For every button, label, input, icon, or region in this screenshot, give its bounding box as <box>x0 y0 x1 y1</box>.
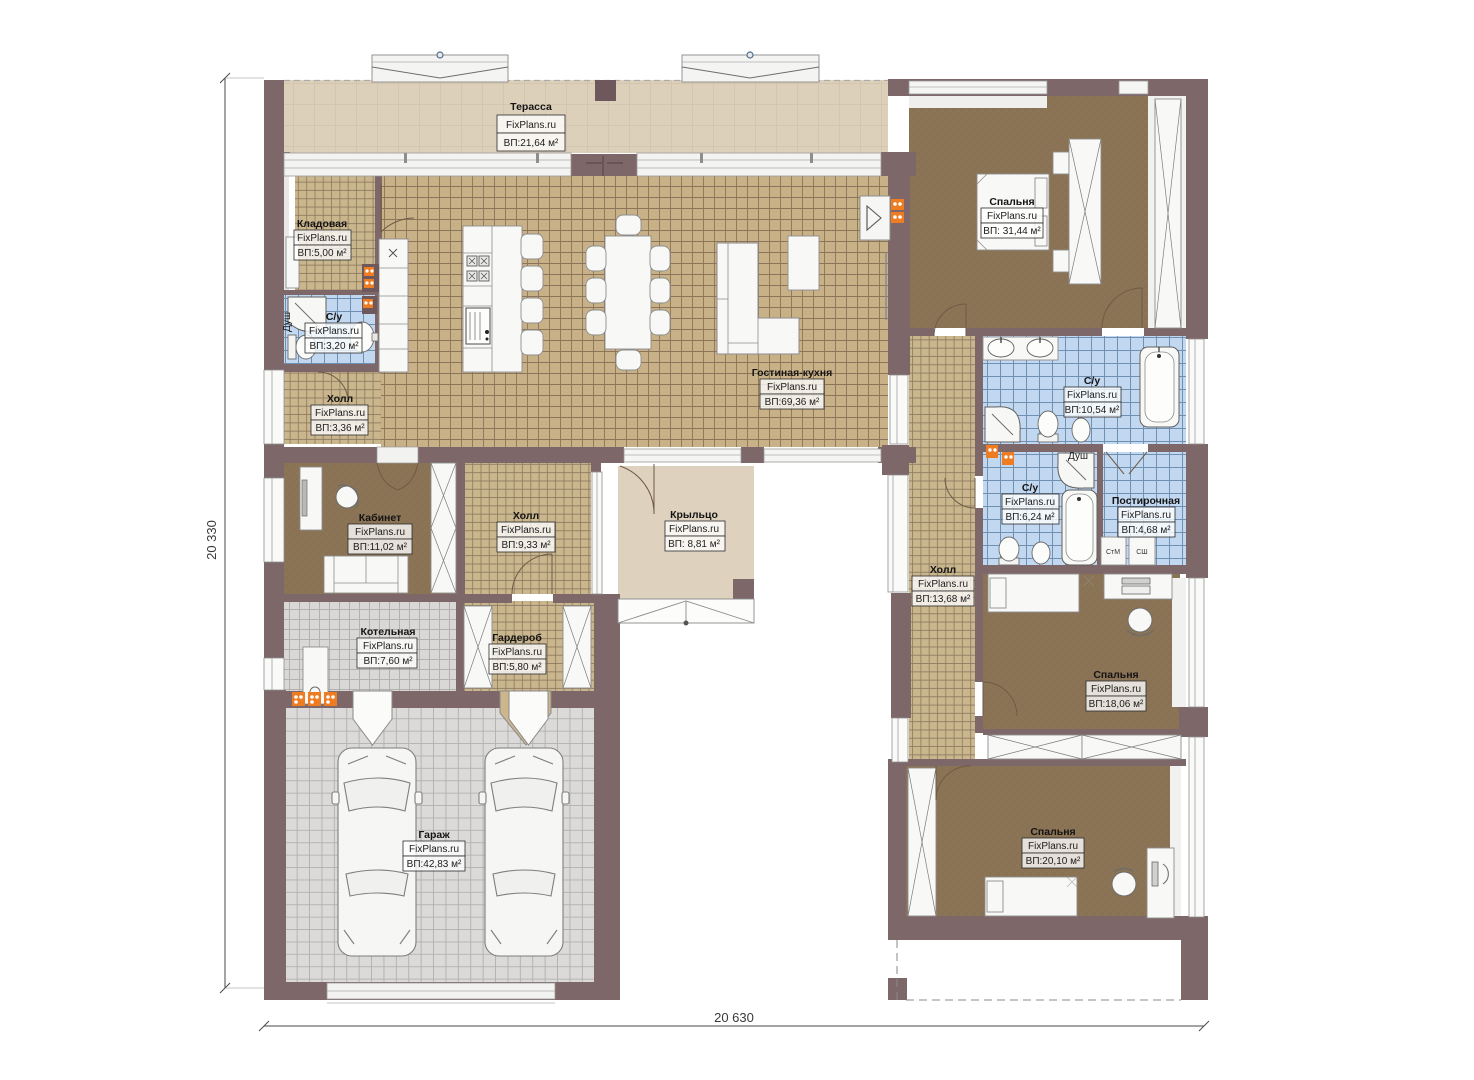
svg-text:Терасса: Терасса <box>510 101 552 113</box>
svg-text:СШ: СШ <box>1136 549 1147 556</box>
svg-text:FixPlans.ru: FixPlans.ru <box>297 233 347 244</box>
svg-text:ВП:5,80 м²: ВП:5,80 м² <box>492 662 542 673</box>
svg-text:Холл: Холл <box>930 564 956 576</box>
svg-text:ВП:3,20 м²: ВП:3,20 м² <box>309 341 359 352</box>
svg-text:FixPlans.ru: FixPlans.ru <box>506 120 556 131</box>
svg-text:ВП:3,36 м²: ВП:3,36 м² <box>315 423 365 434</box>
svg-text:FixPlans.ru: FixPlans.ru <box>669 524 719 535</box>
svg-text:Котельная: Котельная <box>361 626 416 638</box>
svg-text:Душ: Душ <box>282 312 293 332</box>
svg-text:ВП:21,64 м²: ВП:21,64 м² <box>504 138 559 149</box>
svg-text:ВП:6,24 м²: ВП:6,24 м² <box>1005 512 1055 523</box>
svg-text:Спальня: Спальня <box>1093 669 1138 681</box>
svg-text:FixPlans.ru: FixPlans.ru <box>918 579 968 590</box>
svg-text:20 330: 20 330 <box>204 520 219 560</box>
svg-text:ВП:42,83 м²: ВП:42,83 м² <box>407 859 462 870</box>
svg-text:FixPlans.ru: FixPlans.ru <box>1028 841 1078 852</box>
svg-text:ВП:10,54 м²: ВП:10,54 м² <box>1065 405 1120 416</box>
svg-text:Гостиная-кухня: Гостиная-кухня <box>752 367 832 379</box>
svg-text:Кабинет: Кабинет <box>359 512 402 524</box>
svg-text:FixPlans.ru: FixPlans.ru <box>355 527 405 538</box>
svg-text:ВП:18,06 м²: ВП:18,06 м² <box>1089 699 1144 710</box>
svg-text:FixPlans.ru: FixPlans.ru <box>1121 510 1171 521</box>
svg-text:ВП:20,10 м²: ВП:20,10 м² <box>1026 856 1081 867</box>
svg-text:Душ: Душ <box>1068 451 1088 462</box>
svg-text:СтМ: СтМ <box>1106 549 1120 556</box>
svg-text:ВП:11,02 м²: ВП:11,02 м² <box>353 542 408 553</box>
svg-text:Гардероб: Гардероб <box>492 632 542 644</box>
svg-text:FixPlans.ru: FixPlans.ru <box>315 408 365 419</box>
svg-text:ВП:5,00 м²: ВП:5,00 м² <box>297 248 347 259</box>
svg-text:FixPlans.ru: FixPlans.ru <box>987 211 1037 222</box>
svg-text:Гараж: Гараж <box>418 829 450 841</box>
svg-text:Постирочная: Постирочная <box>1112 495 1180 507</box>
svg-text:С/у: С/у <box>326 311 343 323</box>
svg-text:FixPlans.ru: FixPlans.ru <box>1091 684 1141 695</box>
svg-text:ВП: 31,44 м²: ВП: 31,44 м² <box>983 226 1041 237</box>
svg-text:Кладовая: Кладовая <box>297 218 347 230</box>
svg-text:С/у: С/у <box>1084 375 1101 387</box>
svg-text:ВП:4,68 м²: ВП:4,68 м² <box>1121 525 1171 536</box>
svg-text:ВП: 8,81 м²: ВП: 8,81 м² <box>668 539 721 550</box>
svg-text:FixPlans.ru: FixPlans.ru <box>1005 497 1055 508</box>
svg-text:FixPlans.ru: FixPlans.ru <box>767 382 817 393</box>
svg-text:ВП:9,33 м²: ВП:9,33 м² <box>501 540 551 551</box>
svg-text:Крыльцо: Крыльцо <box>670 509 718 521</box>
svg-text:Спальня: Спальня <box>989 196 1034 208</box>
svg-text:FixPlans.ru: FixPlans.ru <box>1067 390 1117 401</box>
svg-text:FixPlans.ru: FixPlans.ru <box>409 844 459 855</box>
svg-text:FixPlans.ru: FixPlans.ru <box>363 641 413 652</box>
svg-text:FixPlans.ru: FixPlans.ru <box>501 525 551 536</box>
svg-text:FixPlans.ru: FixPlans.ru <box>309 326 359 337</box>
svg-text:ВП:13,68 м²: ВП:13,68 м² <box>916 594 971 605</box>
svg-text:ВП:69,36 м²: ВП:69,36 м² <box>765 397 820 408</box>
svg-text:ВП:7,60 м²: ВП:7,60 м² <box>363 656 413 667</box>
svg-text:С/у: С/у <box>1022 482 1039 494</box>
svg-text:Холл: Холл <box>513 510 539 522</box>
svg-text:Холл: Холл <box>327 393 353 405</box>
svg-text:Спальня: Спальня <box>1030 826 1075 838</box>
svg-text:20 630: 20 630 <box>714 1010 754 1025</box>
svg-text:FixPlans.ru: FixPlans.ru <box>492 647 542 658</box>
